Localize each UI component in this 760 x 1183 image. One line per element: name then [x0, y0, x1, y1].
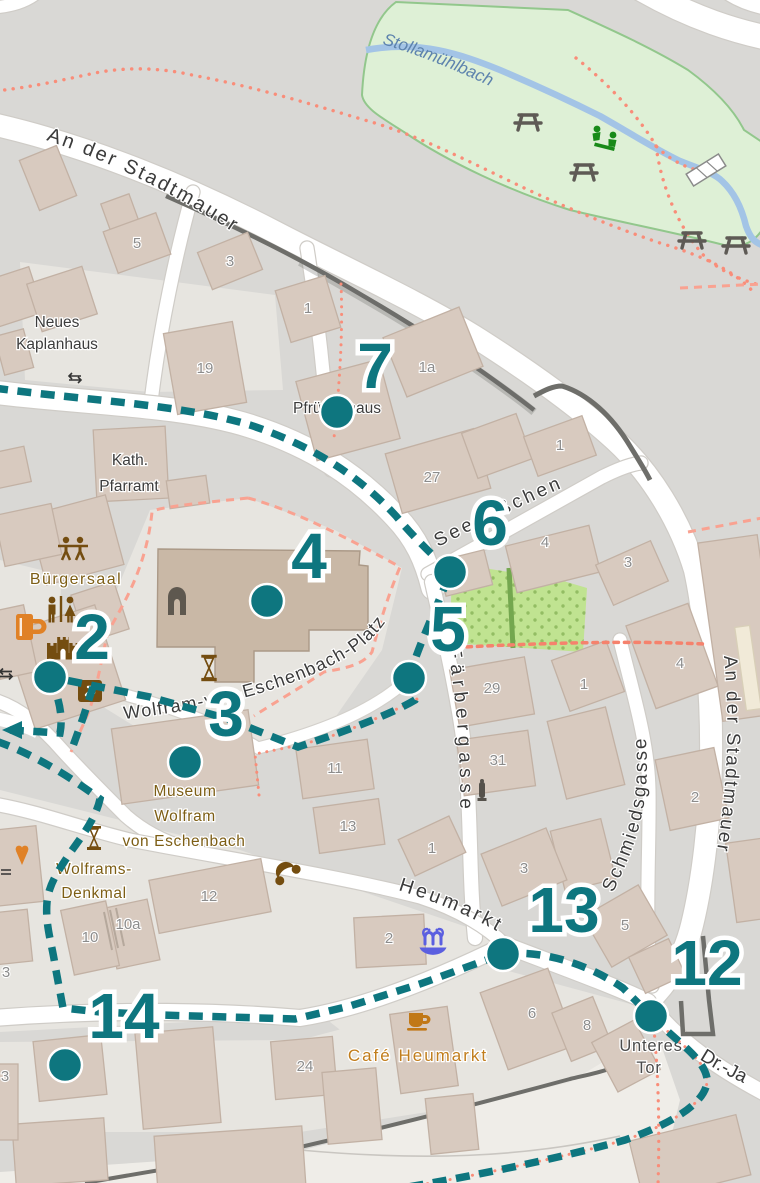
svg-text:31: 31 — [490, 752, 507, 769]
svg-text:2: 2 — [74, 601, 110, 673]
svg-text:12: 12 — [201, 888, 218, 905]
svg-text:Museum: Museum — [153, 783, 216, 800]
svg-text:Kaplanhaus: Kaplanhaus — [16, 336, 98, 353]
svg-text:3: 3 — [226, 253, 234, 270]
svg-text:von Eschenbach: von Eschenbach — [122, 833, 245, 850]
svg-text:Denkmal: Denkmal — [61, 885, 126, 902]
svg-text:19: 19 — [197, 360, 214, 377]
svg-text:2: 2 — [385, 930, 393, 947]
svg-text:14: 14 — [88, 980, 160, 1052]
svg-text:6: 6 — [528, 1005, 536, 1022]
svg-text:5: 5 — [430, 593, 466, 665]
svg-text:4: 4 — [291, 520, 327, 592]
svg-text:10a: 10a — [115, 916, 141, 933]
svg-text:Tor: Tor — [636, 1059, 661, 1077]
svg-text:3: 3 — [2, 964, 10, 981]
svg-text:2: 2 — [691, 789, 699, 806]
svg-text:24: 24 — [297, 1058, 314, 1075]
svg-text:13: 13 — [528, 874, 599, 946]
svg-text:13: 13 — [340, 818, 357, 835]
svg-text:11: 11 — [327, 760, 343, 777]
svg-text:8: 8 — [583, 1017, 591, 1034]
svg-text:3: 3 — [208, 678, 244, 750]
svg-text:Bürgersaal: Bürgersaal — [30, 571, 122, 588]
svg-text:1: 1 — [304, 300, 312, 317]
svg-text:Kath.: Kath. — [112, 452, 148, 469]
svg-text:3: 3 — [624, 554, 632, 571]
svg-text:Pfarramt: Pfarramt — [99, 478, 159, 495]
svg-text:1: 1 — [556, 437, 564, 454]
svg-text:10: 10 — [82, 929, 99, 946]
svg-text:1a: 1a — [419, 359, 436, 376]
svg-text:5: 5 — [133, 235, 141, 252]
svg-text:1: 1 — [580, 676, 588, 693]
svg-text:12: 12 — [671, 927, 742, 999]
svg-text:6: 6 — [472, 487, 508, 559]
svg-text:5: 5 — [621, 917, 629, 934]
svg-text:Neues: Neues — [35, 314, 80, 331]
svg-text:4: 4 — [676, 655, 684, 672]
svg-text:1: 1 — [428, 840, 436, 857]
svg-text:Café Heumarkt: Café Heumarkt — [348, 1046, 488, 1065]
svg-text:29: 29 — [484, 680, 501, 697]
svg-text:7: 7 — [357, 330, 393, 402]
svg-text:Wolfram: Wolfram — [154, 808, 216, 825]
svg-text:3: 3 — [1, 1068, 9, 1085]
svg-text:4: 4 — [541, 534, 549, 551]
svg-text:3: 3 — [520, 860, 528, 877]
svg-text:27: 27 — [424, 469, 441, 486]
